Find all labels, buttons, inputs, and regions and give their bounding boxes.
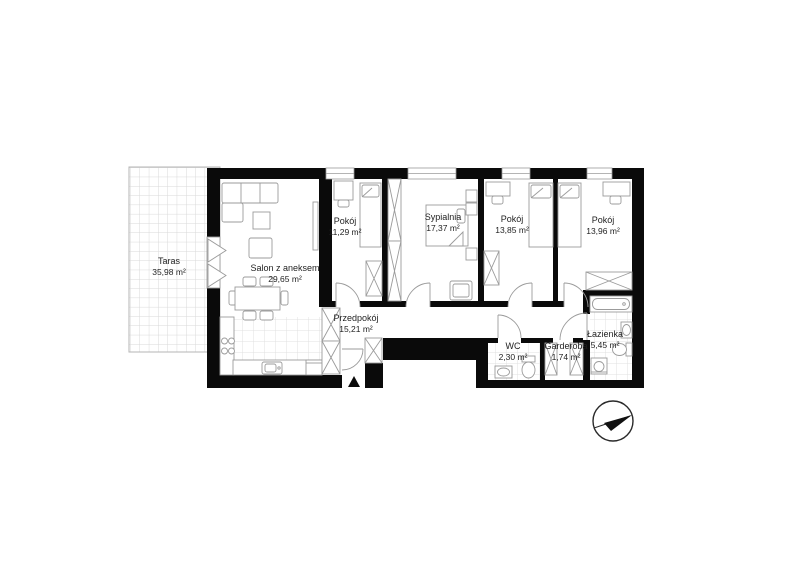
door-lazienka — [560, 313, 587, 340]
washing-machine — [591, 358, 607, 374]
wardrobe — [586, 272, 632, 290]
door-entrance — [342, 349, 363, 370]
wash-basin — [495, 366, 512, 378]
double-bed — [426, 205, 468, 246]
wardrobe — [388, 179, 401, 241]
wash-basin — [621, 322, 632, 338]
north-arrow-icon — [593, 401, 633, 441]
door-pokoj-2 — [508, 283, 532, 307]
room3-furniture — [558, 182, 632, 290]
armchair — [249, 238, 272, 258]
wardrobe — [388, 241, 401, 301]
wardrobe — [365, 338, 382, 363]
desk — [486, 182, 510, 204]
desk — [603, 182, 630, 204]
window — [502, 168, 530, 179]
desk — [334, 181, 353, 207]
floor-plan-page: Taras 35,98 m² Salon z aneksem 29,65 m² … — [0, 0, 800, 570]
wardrobe — [545, 343, 557, 375]
tv — [313, 202, 318, 250]
balcony-door — [207, 237, 226, 288]
bed — [558, 183, 581, 247]
floor-plan-drawing — [0, 0, 800, 570]
kitchen-sink — [262, 362, 282, 374]
coffee-table — [253, 212, 270, 229]
garderoba-fixtures — [545, 343, 583, 375]
bedroom-furniture — [388, 179, 477, 301]
wardrobe — [366, 261, 382, 296]
window — [587, 168, 612, 179]
window — [408, 168, 456, 179]
door-wc — [498, 315, 521, 338]
entrance-triangle-icon — [348, 376, 360, 387]
wardrobe — [322, 341, 340, 374]
toilet — [522, 356, 535, 378]
room2-furniture — [484, 182, 553, 285]
wardrobe — [322, 308, 340, 341]
dining-table — [229, 277, 288, 320]
wardrobe — [484, 251, 499, 285]
room1-furniture — [334, 181, 382, 296]
toilet — [613, 343, 633, 356]
bed — [360, 183, 381, 247]
wardrobe — [570, 343, 583, 375]
armchair — [450, 281, 472, 300]
terrace-floor — [129, 167, 220, 352]
bed — [529, 183, 553, 247]
nightstand — [466, 190, 477, 202]
door-pokoj-1 — [336, 283, 360, 307]
nightstand — [466, 203, 477, 215]
bathtub — [590, 296, 632, 312]
door-sypialnia — [406, 283, 430, 307]
window — [326, 168, 354, 179]
nightstand — [466, 248, 477, 260]
dishwasher — [306, 360, 322, 375]
